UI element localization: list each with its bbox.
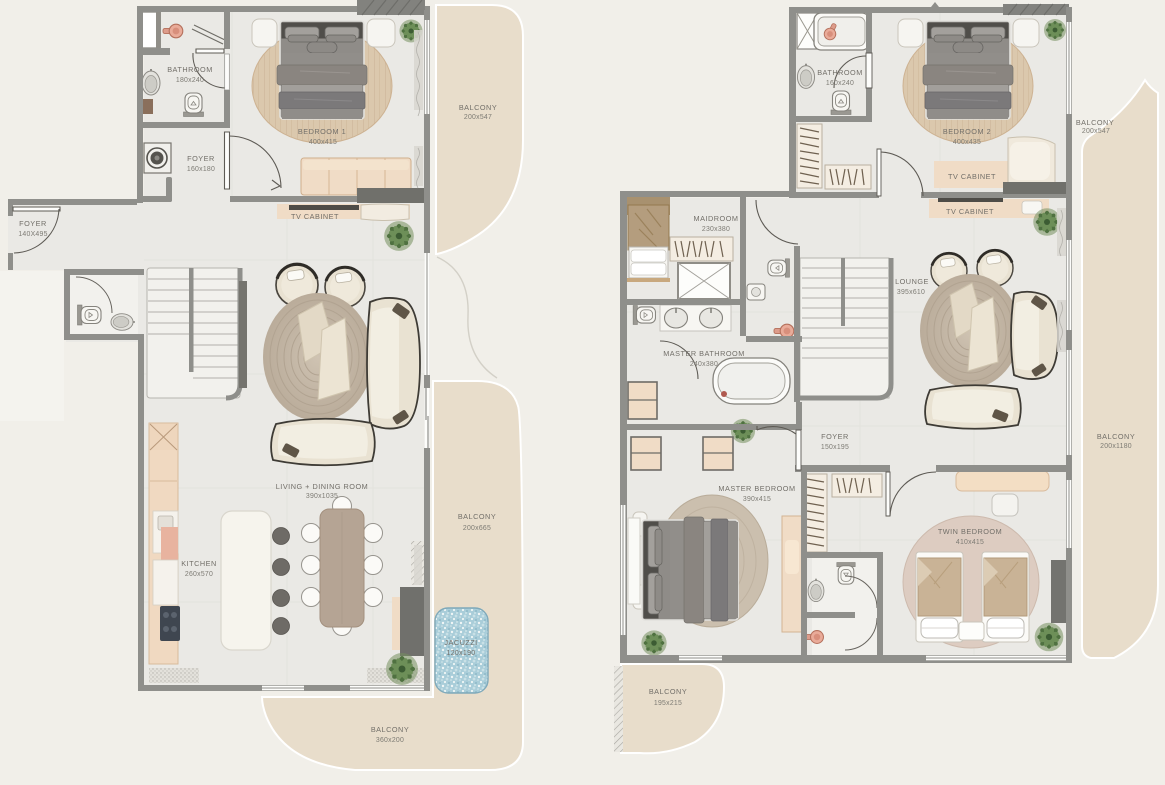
svg-text:JACUZZI: JACUZZI (444, 638, 477, 647)
svg-text:FOYER: FOYER (187, 154, 215, 163)
svg-text:TWIN BEDROOM: TWIN BEDROOM (938, 527, 1002, 536)
svg-text:390x1035: 390x1035 (306, 493, 338, 500)
svg-text:BALCONY: BALCONY (1076, 118, 1114, 127)
svg-text:FOYER: FOYER (821, 432, 849, 441)
svg-text:140X495: 140X495 (18, 231, 47, 238)
svg-text:LOUNGE: LOUNGE (895, 277, 929, 286)
svg-text:200x1180: 200x1180 (1100, 443, 1132, 450)
svg-text:BALCONY: BALCONY (1097, 432, 1135, 441)
svg-text:TV CABINET: TV CABINET (291, 212, 339, 221)
svg-text:BALCONY: BALCONY (458, 512, 496, 521)
svg-text:MASTER BEDROOM: MASTER BEDROOM (718, 484, 795, 493)
svg-text:120x190: 120x190 (447, 650, 476, 657)
svg-text:BALCONY: BALCONY (649, 687, 687, 696)
svg-text:195x215: 195x215 (654, 700, 682, 707)
svg-text:TV CABINET: TV CABINET (946, 207, 994, 216)
svg-text:160x240: 160x240 (826, 80, 854, 87)
svg-text:BALCONY: BALCONY (371, 725, 409, 734)
svg-text:395x610: 395x610 (897, 289, 925, 296)
svg-text:400x415: 400x415 (309, 139, 337, 146)
svg-text:390x415: 390x415 (743, 496, 771, 503)
svg-text:230x380: 230x380 (702, 226, 730, 233)
svg-text:240x380: 240x380 (690, 361, 718, 368)
svg-text:400x435: 400x435 (953, 139, 981, 146)
svg-text:BEDROOM 2: BEDROOM 2 (943, 127, 991, 136)
svg-text:260x570: 260x570 (185, 571, 213, 578)
svg-text:BATHROOM: BATHROOM (817, 68, 863, 77)
svg-text:TV CABINET: TV CABINET (948, 172, 996, 181)
svg-text:BALCONY: BALCONY (459, 103, 497, 112)
svg-text:150x195: 150x195 (821, 444, 849, 451)
svg-text:360x200: 360x200 (376, 737, 404, 744)
svg-text:200x547: 200x547 (464, 114, 492, 121)
svg-text:MAIDROOM: MAIDROOM (694, 214, 739, 223)
svg-text:180x240: 180x240 (176, 77, 204, 84)
svg-text:LIVING + DINING ROOM: LIVING + DINING ROOM (276, 482, 369, 491)
svg-text:200x665: 200x665 (463, 525, 491, 532)
svg-text:410x415: 410x415 (956, 539, 984, 546)
svg-text:MASTER BATHROOM: MASTER BATHROOM (663, 349, 745, 358)
svg-text:BATHROOM: BATHROOM (167, 65, 213, 74)
svg-text:BEDROOM 1: BEDROOM 1 (298, 127, 346, 136)
svg-text:160x180: 160x180 (187, 166, 215, 173)
svg-text:200x547: 200x547 (1082, 128, 1110, 135)
svg-text:KITCHEN: KITCHEN (181, 559, 217, 568)
svg-text:FOYER: FOYER (19, 219, 47, 228)
